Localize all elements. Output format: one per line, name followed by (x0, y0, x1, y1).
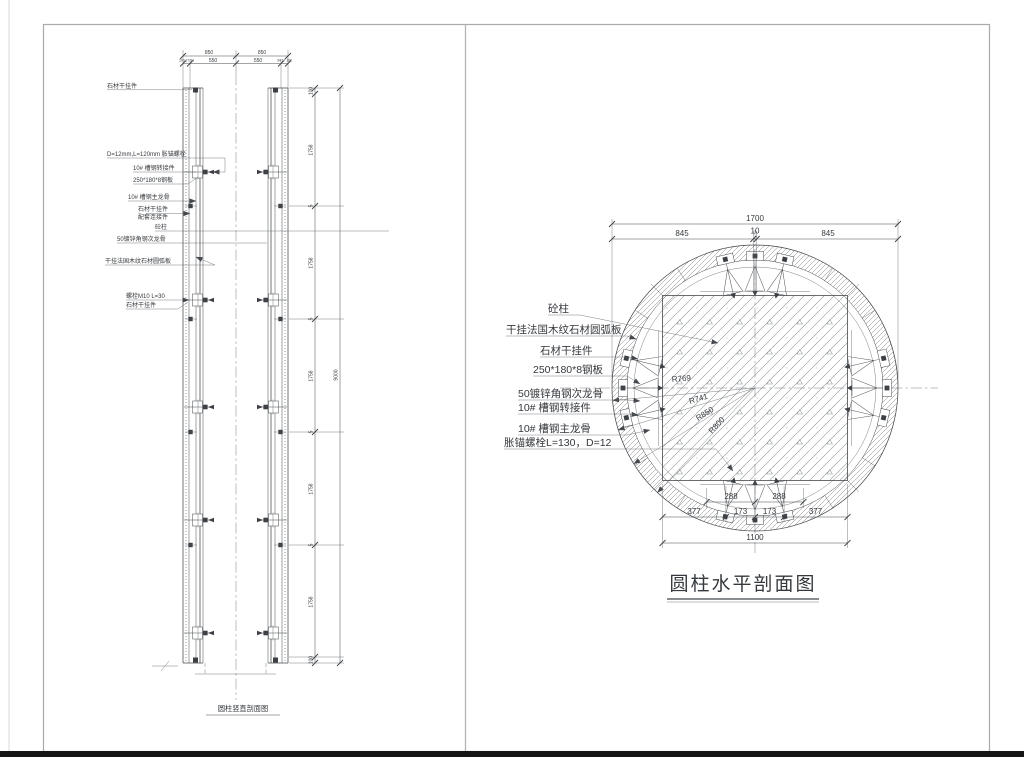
dim-v-5: 5 (309, 204, 315, 207)
label-sub-keel: 50镀锌角钢次龙骨 (117, 235, 166, 243)
dim-v-1758: 1758 (309, 596, 315, 607)
dim-v-1758: 1758 (309, 144, 315, 155)
dim-v-1758: 1758 (309, 370, 315, 381)
dim-v-5: 5 (309, 430, 315, 433)
label-channel-adapter: 10# 槽钢转接件 (518, 401, 591, 414)
label-stone-arc-panel: 干挂法国木纹石材圆弧板 (105, 257, 171, 265)
label-bolt-m10: 螺栓M10 L=30 (126, 292, 166, 300)
dim-10: 10 (751, 227, 760, 236)
dim-v-1758: 1758 (309, 483, 315, 494)
label-concrete-column: 砼柱 (155, 223, 167, 231)
dim-v-1758: 1758 (309, 257, 315, 268)
anchor-square (185, 204, 197, 208)
anchor-square (185, 430, 197, 434)
dim-377-left: 377 (687, 507, 701, 516)
dim-v-5: 5 (309, 317, 315, 320)
label-concrete-column: 砼柱 (548, 302, 569, 315)
drawing-sheet: 850 850 100 17 34 550 550 34 17 100 (0, 0, 1024, 757)
label-main-keel: 10# 槽钢主龙骨 (518, 422, 591, 435)
label-stone-hanger-lower: 石材干挂件 (126, 301, 156, 309)
dim-v-5: 5 (309, 543, 315, 546)
dim-845-left: 845 (675, 229, 689, 238)
label-sub-keel: 50镀锌角钢次龙骨 (518, 387, 603, 400)
dim-v-100-bottom: 100 (309, 656, 315, 665)
anchor-square (185, 317, 197, 321)
label-stone-hanger: 石材干挂件 (540, 344, 593, 357)
stone-band-right (257, 88, 288, 675)
label-steel-plate: 250*180*8钢板 (533, 363, 604, 376)
dim-845-right: 845 (821, 229, 835, 238)
dim-cluster-left: 100 17 34 (179, 58, 194, 62)
left-view-labels: 石材干挂件 D=12mm,L=120mm 胀锚螺栓 10# 槽钢转接件 250*… (105, 82, 389, 309)
dim-377-right: 377 (809, 507, 823, 516)
label-main-keel: 10# 槽钢主龙骨 (128, 193, 170, 201)
dim-850-right: 850 (258, 50, 267, 56)
radius-r769: R769 (671, 373, 691, 384)
plate-connector (184, 400, 214, 415)
dim-850-left: 850 (205, 50, 214, 56)
dim-v-100-top: 100 (309, 87, 315, 96)
label-hanger-fitting: 配套连接件 (138, 213, 168, 221)
label-anchor-bolt: 胀锚螺栓L=130，D=12 (504, 436, 612, 449)
bottom-edge-bar (0, 751, 1024, 757)
plate-connector (184, 626, 214, 641)
dim-1100: 1100 (746, 533, 764, 542)
dim-1700: 1700 (746, 214, 764, 223)
left-top-dimensions: 850 850 100 17 34 550 550 34 17 100 (179, 50, 292, 88)
dim-cluster-right: 34 17 100 (277, 58, 292, 62)
dim-550-left: 550 (209, 58, 218, 64)
label-stone-arc-panel: 干挂法国木纹石材圆弧板 (506, 323, 622, 336)
dim-v-total-9000: 9000 (334, 369, 340, 380)
left-view-title: 圆柱竖直剖面图 (218, 704, 268, 713)
label-anchor-bolt: D=12mm,L=120mm 胀锚螺栓 (107, 150, 186, 158)
right-section-view: R769 R741 R850 R800 1700 845 10 845 (504, 214, 938, 602)
label-stone-hanger-top: 石材干挂件 (107, 82, 137, 90)
plate-connector (184, 513, 214, 528)
right-view-title: 圆柱水平剖面图 (669, 573, 816, 595)
label-steel-plate: 250*180*8钢板 (133, 176, 173, 184)
dim-173-right: 173 (763, 507, 777, 516)
left-elevation-view: 850 850 100 17 34 550 550 34 17 100 (105, 50, 389, 715)
label-stone-hanger: 石材干挂件 (138, 205, 168, 213)
anchor-square (185, 543, 197, 547)
left-side-dimensions: 100 1758 5 1758 5 1758 5 1758 5 1758 100… (289, 85, 344, 666)
dim-173-left: 173 (734, 507, 748, 516)
dim-288-left: 288 (724, 492, 738, 501)
dim-550-right: 550 (254, 58, 263, 64)
label-channel-adapter: 10# 槽钢转接件 (133, 164, 175, 172)
